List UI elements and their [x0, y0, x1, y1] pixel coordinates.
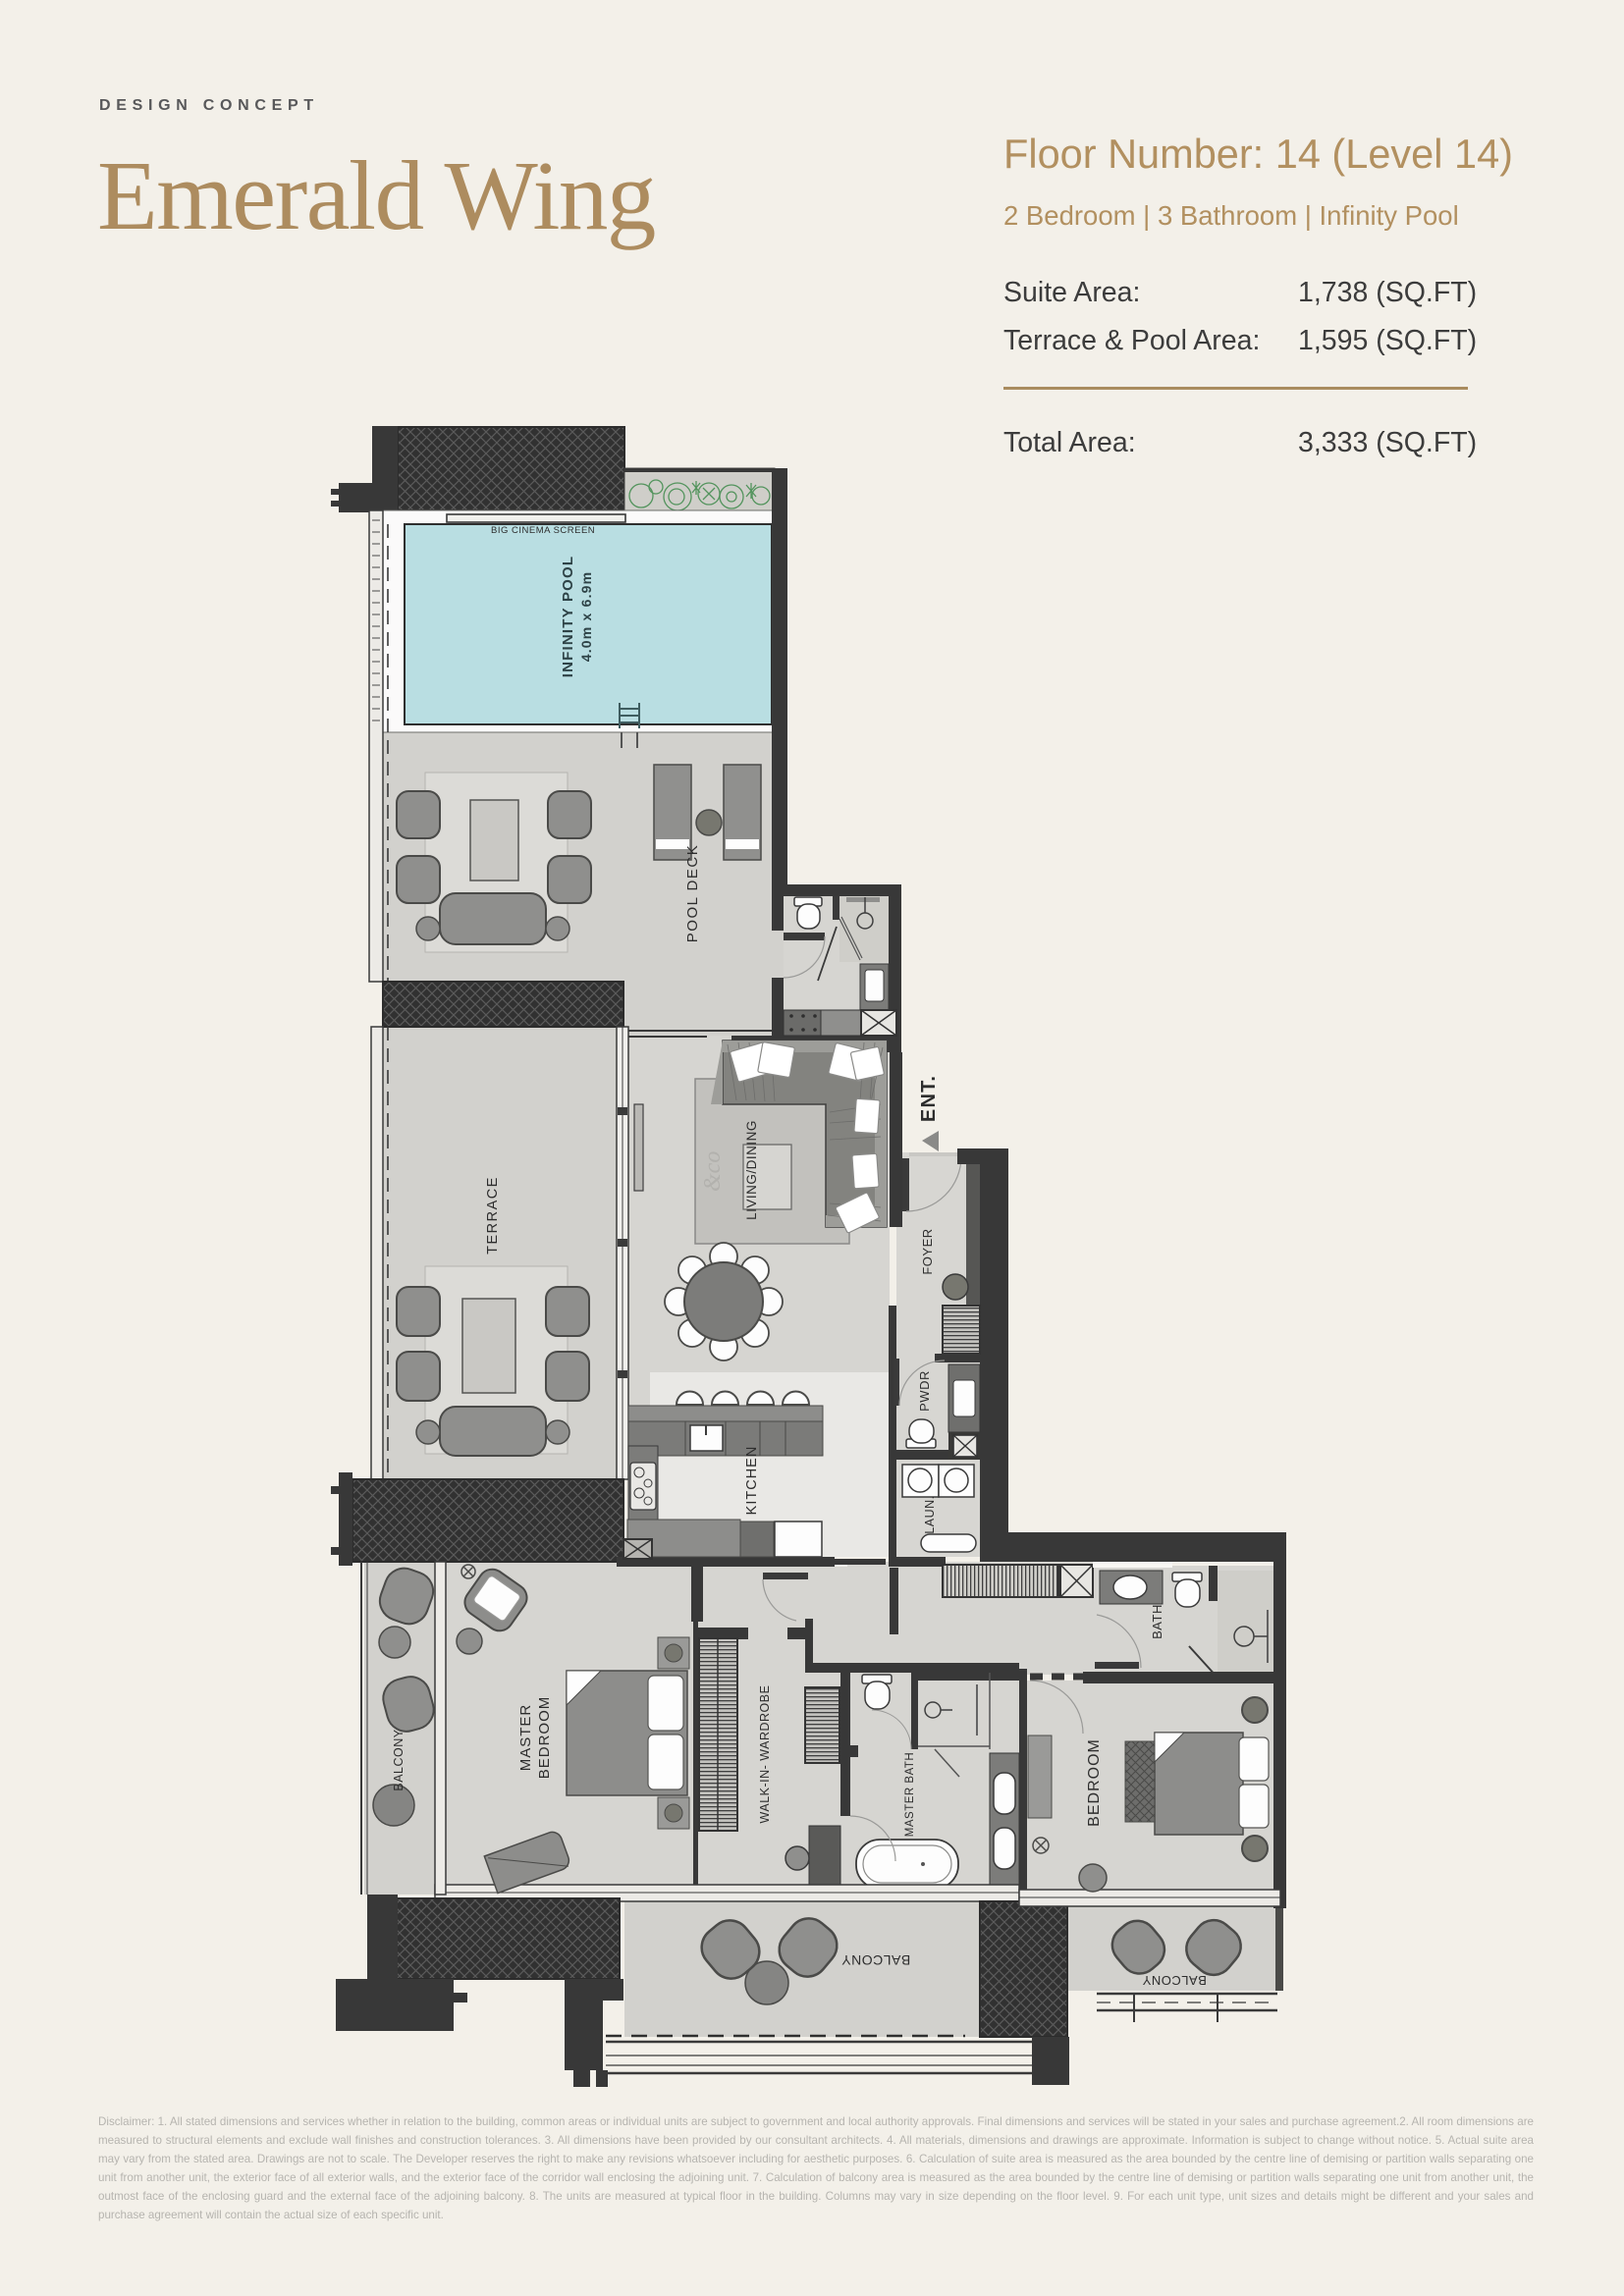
svg-text:PWDR: PWDR	[917, 1370, 932, 1412]
svg-text:TERRACE: TERRACE	[485, 1176, 501, 1255]
svg-text:BALCONY: BALCONY	[392, 1729, 406, 1790]
svg-text:BIG CINEMA SCREEN: BIG CINEMA SCREEN	[491, 525, 595, 536]
svg-text:ENT.: ENT.	[918, 1075, 940, 1122]
svg-text:KITCHEN: KITCHEN	[744, 1446, 760, 1516]
svg-text:BALCONY: BALCONY	[1142, 1973, 1207, 1988]
svg-text:INFINITY POOL: INFINITY POOL	[560, 556, 576, 678]
svg-text:MASTER BATH: MASTER BATH	[904, 1752, 916, 1837]
svg-text:POOL DECK: POOL DECK	[684, 844, 701, 942]
svg-text:BATH: BATH	[1150, 1604, 1164, 1639]
svg-text:FOYER: FOYER	[920, 1228, 935, 1274]
svg-text:4.0m x 6.9m: 4.0m x 6.9m	[578, 571, 594, 663]
svg-text:BALCONY: BALCONY	[841, 1952, 911, 1968]
svg-text:LAUN.: LAUN.	[923, 1495, 937, 1533]
svg-text:WALK-IN- WARDROBE: WALK-IN- WARDROBE	[758, 1685, 772, 1824]
svg-text:&co: &co	[700, 1151, 726, 1192]
svg-text:BEDROOM: BEDROOM	[536, 1696, 553, 1780]
svg-text:LIVING/DINING: LIVING/DINING	[744, 1120, 759, 1220]
svg-text:MASTER: MASTER	[517, 1704, 534, 1772]
svg-text:BEDROOM: BEDROOM	[1086, 1738, 1103, 1827]
